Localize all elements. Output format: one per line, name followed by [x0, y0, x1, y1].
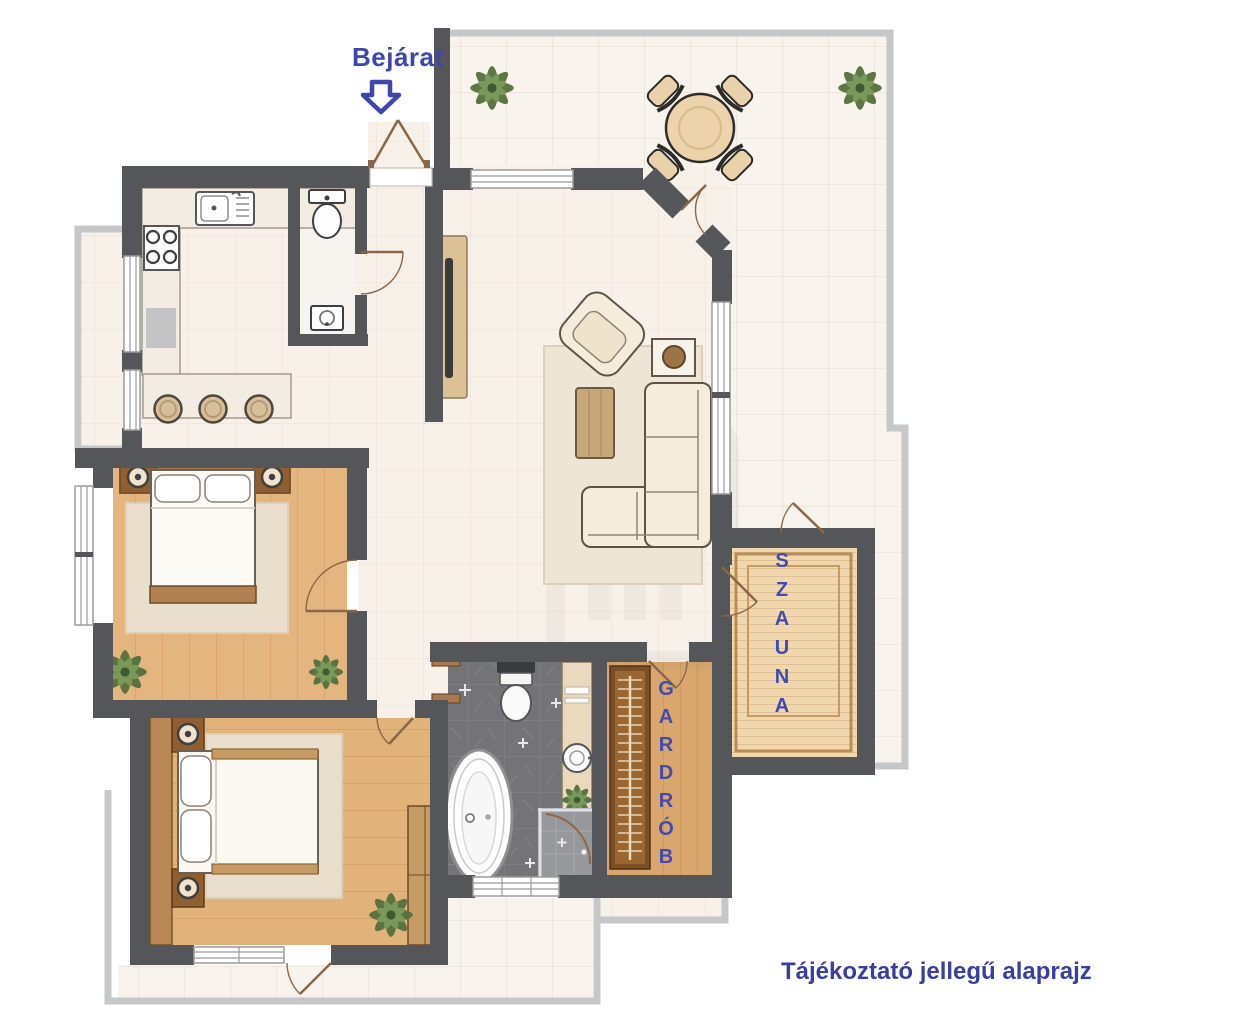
dining-table [666, 94, 734, 162]
floor-plan-page: Bejárat SZAUNA GARDRÓB Tájékoztató jelle… [0, 0, 1259, 1024]
hand-basin [311, 306, 343, 330]
window-living-top [471, 170, 573, 188]
disclaimer-label: Tájékoztató jellegű alaprajz [781, 958, 1092, 986]
pot-plant [663, 346, 685, 368]
bed-double [178, 749, 318, 874]
tv-cabinet [440, 236, 467, 398]
floor-plan-drawing [0, 0, 1259, 1024]
sauna-benches [730, 548, 857, 757]
toilet [501, 685, 531, 721]
corridor-floor [358, 420, 448, 718]
bathtub [446, 750, 512, 882]
sauna-room [712, 528, 875, 775]
toilet [313, 204, 341, 238]
sauna-label: SZAUNA [772, 550, 792, 730]
tv [445, 258, 453, 378]
kitchen-mat [146, 308, 176, 348]
entrance-threshold [370, 168, 432, 186]
wardrobe-label: GARDRÓB [656, 678, 676, 888]
balcony-left [78, 229, 122, 449]
bed-double [150, 470, 256, 603]
coffee-table [576, 388, 614, 458]
window-bedroom1-left [75, 486, 93, 625]
window-living-right [712, 302, 730, 494]
entrance-arrow-icon [363, 82, 399, 112]
vanity-sink [563, 744, 591, 772]
window-kitchen-left [124, 256, 140, 430]
wardrobe-room [610, 666, 650, 869]
wardrobe-panel [150, 712, 172, 945]
toilet-tank [497, 661, 535, 673]
shower [538, 808, 592, 877]
window-bathroom-bottom [473, 877, 559, 896]
entrance-label: Bejárat [352, 42, 444, 73]
window-bedroom2-bottom [194, 947, 284, 963]
